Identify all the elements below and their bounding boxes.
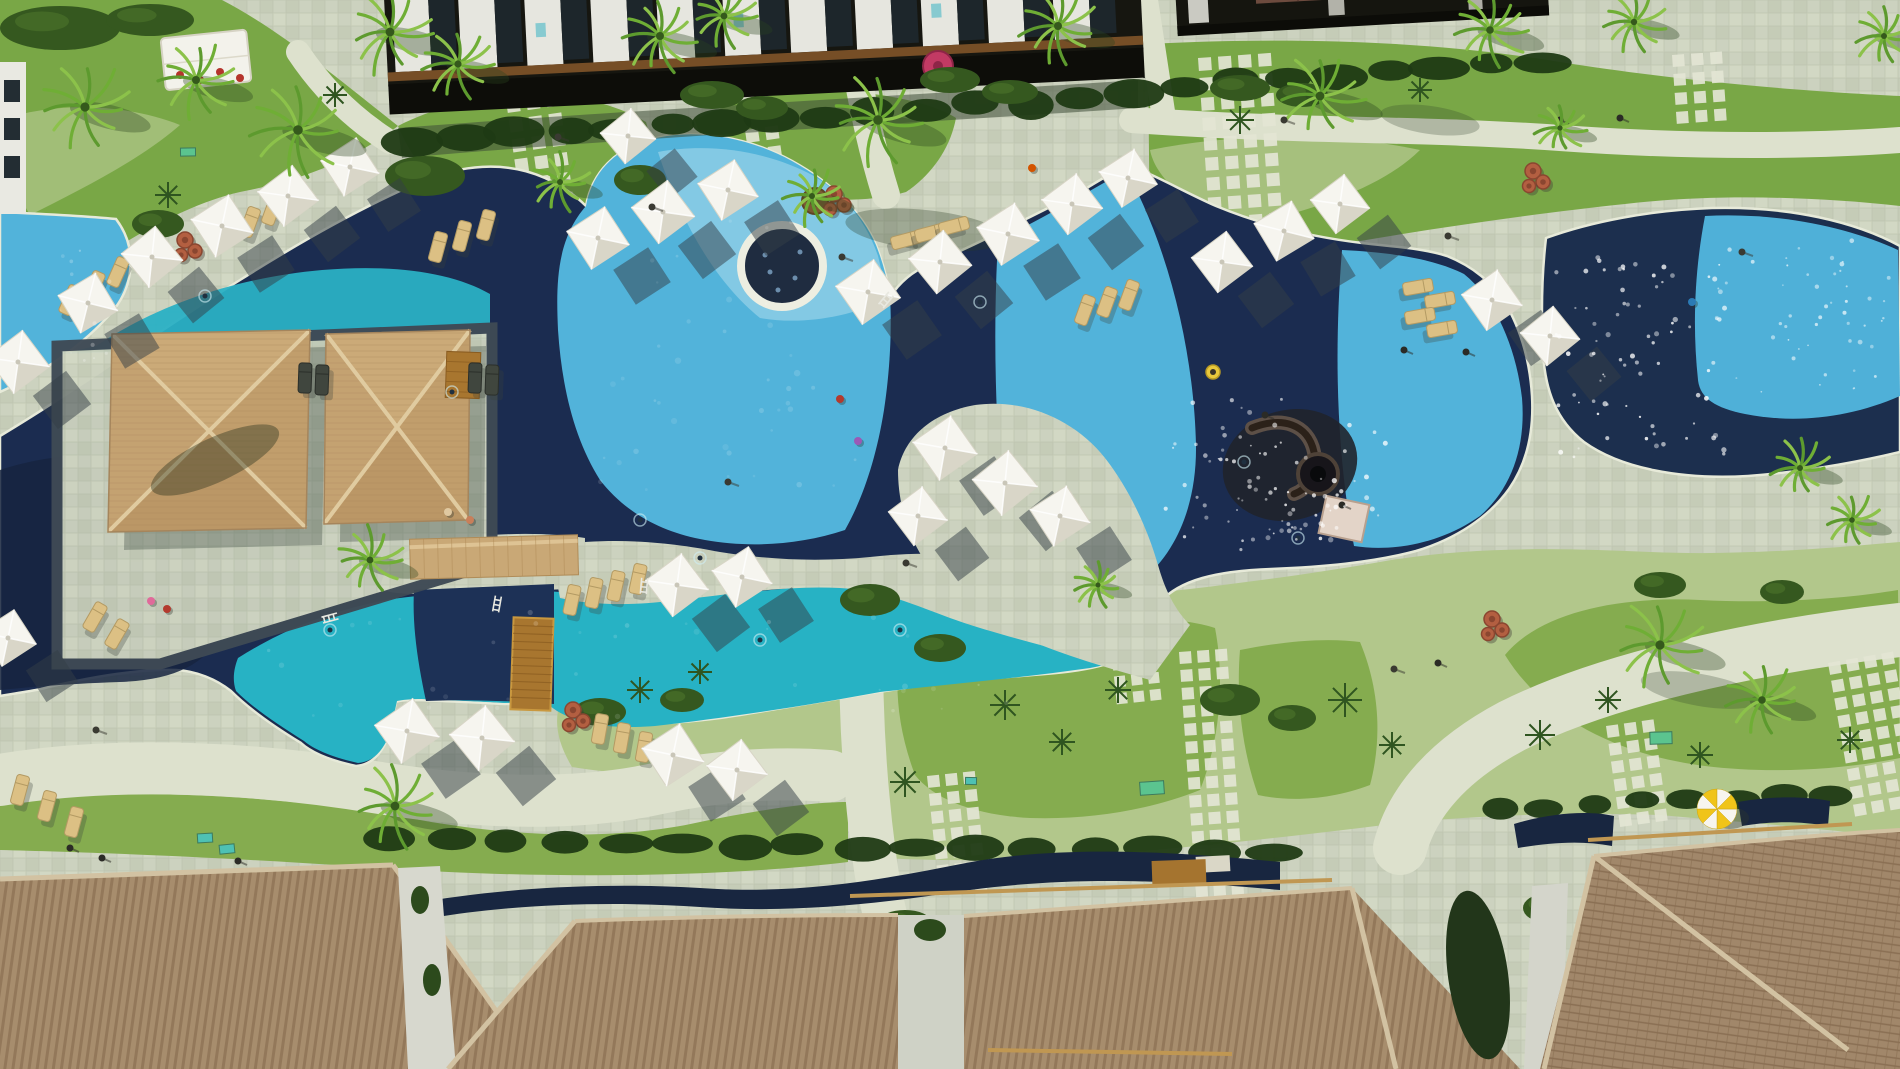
sparkle — [1332, 478, 1337, 483]
sparkle — [1345, 504, 1348, 507]
stepping-stone — [1198, 668, 1211, 681]
sparkle — [1279, 528, 1284, 533]
stepping-stone — [947, 791, 960, 804]
bush — [660, 688, 704, 712]
stepping-stone — [1189, 795, 1202, 808]
sparkle — [1592, 322, 1596, 326]
stepping-stone — [1243, 134, 1257, 148]
sparkle — [1670, 330, 1673, 333]
swimmer-dot — [638, 518, 643, 523]
stepping-stone — [1180, 669, 1193, 682]
stepping-stone — [1855, 711, 1869, 725]
stepping-stone — [1710, 52, 1723, 65]
sparkle — [676, 255, 679, 258]
sparkle — [1583, 269, 1588, 274]
bush-highlight — [848, 588, 875, 602]
yucca-plant — [1525, 720, 1555, 750]
stepping-stone — [1182, 687, 1195, 700]
sparkle — [1573, 456, 1576, 459]
stepping-stone — [1879, 743, 1893, 757]
sparkle — [1824, 373, 1827, 376]
hedge-bush — [1160, 77, 1208, 97]
hedge-bush — [1245, 844, 1303, 862]
bush-highlight — [117, 8, 157, 22]
hedge-bush — [1625, 791, 1659, 808]
sparkle — [1713, 433, 1718, 438]
sparkle — [727, 450, 732, 455]
sparkle — [350, 623, 355, 628]
lounger-body — [315, 365, 329, 395]
sparkle — [1204, 516, 1208, 520]
jar-mouth — [566, 722, 571, 727]
stepping-stone — [1692, 72, 1705, 85]
palm-crown — [1054, 22, 1062, 30]
sparkle — [1190, 400, 1195, 405]
swimmer-dot — [978, 300, 983, 305]
lawn-mat — [1140, 781, 1165, 796]
jar-mouth — [1526, 183, 1531, 188]
palm-crown — [1557, 125, 1562, 130]
spa-glint — [768, 270, 773, 275]
stepping-stone — [1204, 137, 1218, 151]
sparkle — [91, 343, 95, 347]
sparkle — [1619, 358, 1622, 361]
stepping-stone — [1713, 89, 1726, 102]
sparkle — [1259, 452, 1261, 454]
lawn-mat — [180, 148, 195, 156]
sparkle — [1321, 523, 1325, 527]
sparkle — [1329, 510, 1331, 512]
lamp-head — [725, 479, 732, 486]
bush-highlight — [621, 169, 644, 183]
sparkle — [1647, 335, 1651, 339]
lawn-mat — [965, 777, 976, 784]
sparkle — [1798, 247, 1801, 250]
sparkle — [1597, 413, 1600, 416]
sparkle — [1300, 528, 1303, 531]
stepping-stone — [1222, 756, 1235, 769]
stepping-stone — [1871, 800, 1885, 814]
sparkle — [1602, 401, 1607, 406]
sparkle — [1319, 537, 1323, 541]
sparkle — [93, 357, 95, 359]
sparkle — [789, 354, 792, 357]
sparkle — [654, 399, 657, 402]
stepping-stone — [1218, 56, 1232, 70]
bush-highlight — [1766, 583, 1786, 594]
yucca-plant — [1595, 687, 1621, 713]
stepping-stone — [1206, 776, 1219, 789]
sparkle — [1281, 520, 1283, 522]
sparkle — [1183, 483, 1187, 487]
sparkle — [931, 686, 936, 691]
yucca-plant — [1837, 727, 1863, 753]
sparkle — [1221, 448, 1224, 451]
sparkle — [1578, 402, 1580, 404]
sparkle — [1241, 499, 1243, 501]
stepping-stone — [1606, 724, 1620, 738]
figure-dot — [235, 858, 242, 865]
palm-crown — [656, 32, 664, 40]
stepping-stone — [1202, 722, 1215, 735]
sparkle — [1864, 324, 1866, 326]
sparkle — [1314, 514, 1317, 517]
sparkle — [811, 386, 815, 390]
sparkle — [1268, 490, 1272, 494]
lamp-head — [1445, 233, 1452, 240]
lounger-body — [485, 365, 499, 395]
hedge-bush — [381, 127, 443, 157]
sparkle — [901, 688, 906, 693]
sparkle — [1595, 255, 1600, 260]
ladder-rung — [493, 609, 499, 610]
stepping-stone — [1887, 687, 1900, 701]
lamp-head — [93, 727, 100, 734]
palm-crown — [1631, 19, 1637, 25]
sparkle — [1595, 340, 1597, 342]
sparkle — [777, 408, 780, 411]
bush-highlight — [989, 83, 1014, 94]
sparkle — [770, 429, 773, 432]
sparkle — [1883, 300, 1885, 302]
jar-mouth — [580, 718, 586, 724]
palm-crown — [1655, 640, 1664, 649]
sparkle — [1849, 238, 1854, 243]
hedge-bush — [835, 837, 891, 862]
sparkle — [1183, 535, 1186, 538]
sparkle — [1839, 270, 1841, 272]
palm-crown — [293, 125, 303, 135]
yucca-plant — [1328, 683, 1362, 717]
bush-highlight — [1218, 78, 1245, 90]
sparkle — [1867, 296, 1871, 300]
bush — [840, 584, 900, 616]
sparkle — [723, 330, 727, 334]
bush — [920, 67, 980, 93]
bush-highlight — [1208, 688, 1235, 702]
sparkle — [506, 698, 509, 701]
sparkle — [83, 359, 86, 362]
sparkle — [1717, 317, 1721, 321]
stepping-stone — [1868, 782, 1882, 796]
hedge-bush — [770, 833, 823, 855]
sparkle — [1824, 304, 1828, 308]
bush — [680, 81, 744, 109]
sparkle — [1735, 377, 1737, 379]
lamp-head — [555, 134, 562, 141]
jar-mouth — [1530, 168, 1536, 174]
bush — [982, 80, 1038, 104]
sparkle — [788, 406, 794, 412]
sparkle — [1853, 369, 1856, 372]
sparkle — [1334, 505, 1339, 510]
sparkle — [1853, 388, 1855, 390]
sparkle — [650, 258, 654, 262]
sparkle — [1293, 526, 1297, 530]
sparkle — [1652, 273, 1656, 277]
sparkle — [1638, 372, 1642, 376]
swimmer-dot — [328, 628, 333, 633]
stepping-stone — [1881, 652, 1895, 666]
sparkle — [603, 457, 606, 460]
sparkle — [1284, 504, 1287, 507]
palm-crown — [80, 102, 89, 111]
stepping-stone — [1619, 813, 1633, 827]
sparkle — [1870, 345, 1874, 349]
stepping-stone — [1204, 758, 1217, 771]
palm-crown — [1316, 92, 1325, 101]
sparkle — [613, 635, 617, 639]
sparkle — [1287, 491, 1289, 493]
sparkle — [1605, 436, 1609, 440]
sparkle — [1377, 514, 1379, 516]
sparkle — [1639, 416, 1641, 418]
sparkle — [621, 377, 625, 381]
sparkle — [759, 408, 764, 413]
sparkle — [794, 370, 801, 377]
stepping-stone — [1636, 811, 1650, 825]
sparkle — [1287, 529, 1292, 534]
sparkle — [1708, 275, 1711, 278]
sparkle — [1760, 391, 1762, 393]
sparkle — [1247, 479, 1252, 484]
sparkle — [1688, 325, 1691, 328]
sparkle — [906, 634, 910, 638]
sparkle — [1661, 442, 1666, 447]
stepping-stone — [1220, 720, 1233, 733]
bush — [0, 6, 120, 50]
sparkle — [1265, 498, 1268, 501]
hedge-bush — [428, 828, 476, 850]
sparkle — [1782, 284, 1784, 286]
sparkle — [615, 714, 620, 719]
stepping-stone — [1647, 755, 1661, 769]
sparkle — [1291, 526, 1293, 528]
sparkle — [70, 352, 72, 354]
sparkle — [1848, 339, 1852, 343]
yucca-plant — [1105, 677, 1131, 703]
bush — [914, 634, 966, 662]
sparkle — [69, 260, 73, 264]
sparkle — [1208, 460, 1211, 463]
stepping-stone — [1238, 54, 1252, 68]
sparkle — [61, 254, 65, 258]
stepping-stone — [1203, 740, 1216, 753]
stepping-stone — [1629, 757, 1643, 771]
sparkle — [1622, 302, 1626, 306]
sparkle — [633, 449, 639, 455]
stepping-stone — [1654, 808, 1668, 822]
spa-glint — [776, 288, 781, 293]
spa-glint — [798, 250, 803, 255]
figure-dot — [1617, 115, 1624, 122]
sparkle — [1685, 437, 1688, 440]
palm-crown — [873, 115, 883, 125]
person-dot — [1028, 164, 1036, 172]
sparkle — [491, 641, 495, 645]
sparkle — [1238, 435, 1242, 439]
sparkle — [1572, 393, 1576, 397]
stepping-stone — [1198, 57, 1212, 71]
sparkle — [1305, 492, 1307, 494]
sparkle — [657, 344, 660, 347]
balcony-item — [931, 3, 942, 17]
swimmer-dot — [1242, 460, 1247, 465]
hedge-bush — [1470, 53, 1513, 73]
building-wall-panel — [589, 0, 629, 62]
building-window — [559, 0, 589, 60]
stepping-stone — [1831, 679, 1845, 693]
sparkle — [1653, 432, 1656, 435]
sparkle — [786, 386, 791, 391]
sparkle — [796, 482, 802, 488]
hedge-bush — [947, 835, 1005, 861]
yucca-plant — [1687, 742, 1713, 768]
hedge-bush — [1513, 52, 1571, 73]
stepping-stone — [1179, 651, 1192, 664]
building-left-sliver — [0, 62, 26, 214]
building-window — [889, 0, 919, 44]
stepping-stone — [534, 155, 549, 170]
sparkle — [1833, 272, 1836, 275]
sparkle — [279, 662, 284, 667]
red-chair — [236, 74, 244, 82]
palm-crown — [557, 179, 563, 185]
sparkle — [1604, 375, 1606, 377]
sparkle — [1288, 511, 1293, 516]
sparkle — [1195, 496, 1198, 499]
sparkle — [1222, 433, 1227, 438]
stepping-stone — [1266, 173, 1280, 187]
bush-highlight — [666, 691, 686, 702]
sparkle — [1654, 443, 1659, 448]
bush — [1760, 580, 1804, 604]
sparkle — [1887, 276, 1891, 280]
sparkle — [767, 620, 771, 624]
stepping-stone — [1205, 157, 1219, 171]
sparkle — [1164, 507, 1168, 511]
sparkle — [1004, 700, 1009, 705]
stepping-stone — [945, 773, 958, 786]
stepping-stone — [1202, 117, 1216, 131]
right-pool-light-wedge — [1695, 215, 1900, 418]
sparkle — [1203, 503, 1207, 507]
stepping-stone — [929, 793, 942, 806]
sparkle — [1704, 396, 1709, 401]
sparkle — [1266, 535, 1271, 540]
stepping-stone — [1228, 195, 1242, 209]
sparkle — [1203, 453, 1208, 458]
stepping-stone — [1224, 136, 1238, 150]
sparkle — [1638, 304, 1641, 307]
sparkle — [1727, 247, 1731, 251]
ladder-rung — [641, 587, 647, 588]
jar-mouth — [182, 237, 188, 243]
hedge-bush — [1103, 79, 1164, 108]
sparkle — [1630, 353, 1635, 358]
stepping-stone — [1195, 885, 1208, 898]
bush-highlight — [743, 99, 766, 110]
stepping-stone — [1834, 696, 1848, 710]
sparkle — [1846, 285, 1848, 287]
stepping-stone — [1197, 650, 1210, 663]
sparkle — [1274, 487, 1277, 490]
sparkle — [1256, 476, 1260, 480]
sparkle — [1606, 332, 1611, 337]
sparkle — [92, 321, 96, 325]
figure-dot — [1262, 412, 1269, 419]
sparkle — [1347, 423, 1352, 428]
lamp-head — [839, 254, 846, 261]
stepping-stone — [1216, 667, 1229, 680]
sparkle — [1655, 285, 1658, 288]
jar-mouth — [1489, 616, 1495, 622]
sparkle — [617, 460, 622, 465]
sparkle — [767, 378, 770, 381]
stepping-stone — [1691, 53, 1704, 66]
sparkle — [1295, 461, 1299, 465]
stepping-stone — [1227, 828, 1240, 841]
sparkle — [1219, 458, 1223, 462]
sparkle — [312, 714, 315, 717]
sparkle — [645, 488, 648, 491]
lawn-mat — [1650, 732, 1672, 745]
hedge-bush — [652, 834, 713, 854]
sparkle — [722, 444, 728, 450]
stepping-stone — [1268, 193, 1282, 207]
sparkle — [610, 381, 616, 387]
yucca-plant — [1408, 78, 1432, 102]
sparkle — [1623, 363, 1626, 366]
sparkle — [1819, 384, 1821, 386]
sparkle — [399, 618, 402, 621]
sparkle — [1250, 445, 1252, 447]
stepping-stone — [965, 789, 978, 802]
sparkle — [1818, 315, 1822, 319]
sparkle — [1554, 270, 1558, 274]
sparkle — [1280, 442, 1282, 444]
sparkle — [1247, 410, 1252, 415]
sparkle — [1339, 489, 1343, 493]
stepping-stone — [1207, 794, 1220, 807]
yucca-plant — [323, 83, 347, 107]
yucca-plant — [627, 677, 653, 703]
stepping-stone — [1870, 690, 1884, 704]
sparkle — [1693, 422, 1695, 424]
building-wall-panel — [853, 0, 893, 50]
sparkle — [656, 281, 658, 283]
sparkle — [1603, 268, 1606, 271]
sparkle — [1788, 339, 1790, 341]
stepping-stone — [1263, 133, 1277, 147]
poolside-pavilion — [410, 535, 579, 579]
hedge-bush — [1056, 87, 1104, 109]
yucca-plant — [1226, 106, 1254, 134]
sparkle — [1661, 281, 1663, 283]
hedge-bush — [599, 834, 653, 854]
sparkle — [1840, 262, 1845, 267]
sparkle — [1620, 288, 1625, 293]
stepping-stone — [1626, 740, 1640, 754]
sparkle — [767, 322, 773, 328]
bush-highlight — [1274, 708, 1296, 720]
sparkle — [786, 401, 791, 406]
palm-crown — [809, 193, 815, 199]
sparkle — [1882, 317, 1884, 319]
sparkle — [1718, 264, 1720, 266]
sparkle — [1240, 407, 1242, 409]
sparkle — [941, 708, 943, 710]
